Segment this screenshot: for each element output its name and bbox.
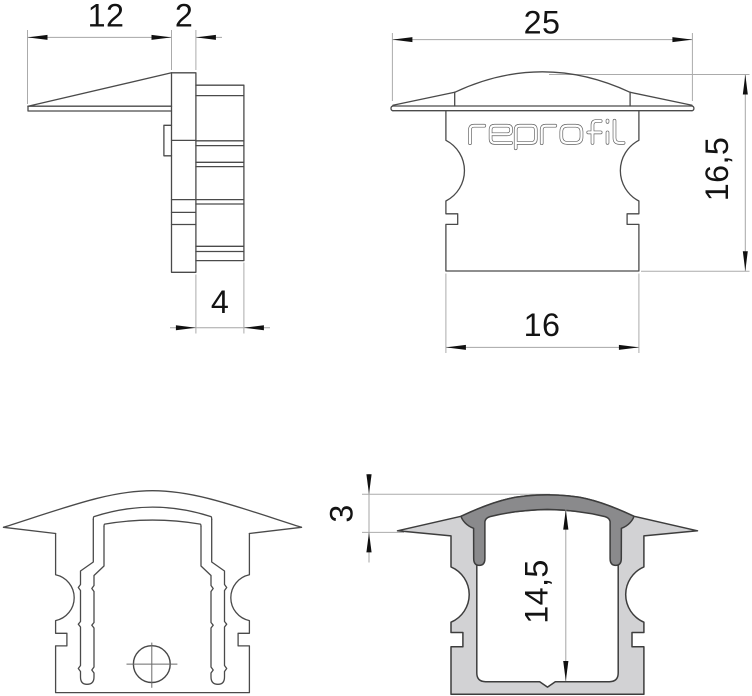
svg-text:14,5: 14,5 bbox=[519, 559, 555, 623]
svg-text:25: 25 bbox=[524, 5, 561, 41]
svg-text:4: 4 bbox=[211, 284, 229, 320]
svg-text:3: 3 bbox=[324, 504, 360, 522]
svg-text:16: 16 bbox=[524, 307, 561, 343]
svg-text:16,5: 16,5 bbox=[699, 137, 735, 201]
svg-text:12: 12 bbox=[88, 0, 125, 34]
svg-text:2: 2 bbox=[175, 0, 193, 34]
